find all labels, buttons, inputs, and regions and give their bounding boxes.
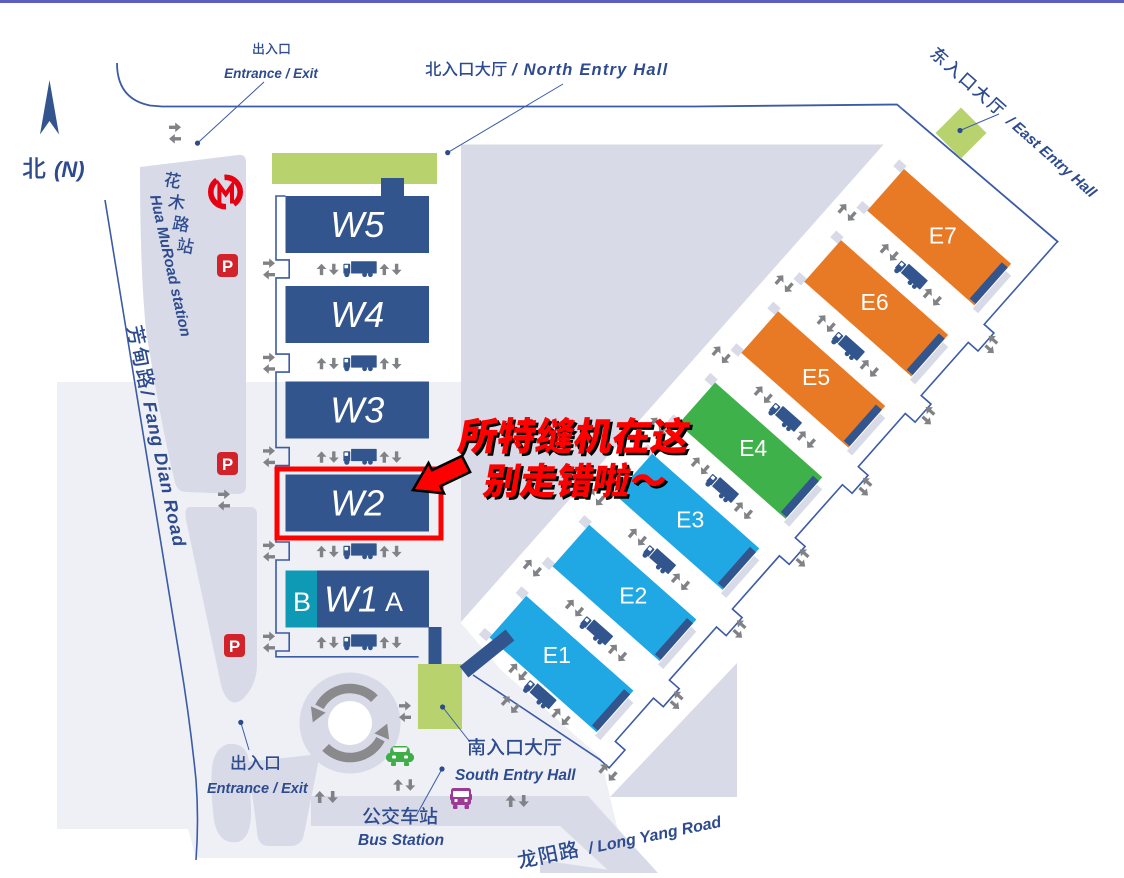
svg-text:P: P bbox=[222, 455, 233, 474]
svg-text:E6: E6 bbox=[861, 289, 889, 315]
svg-text:Bus Station: Bus Station bbox=[358, 832, 444, 849]
svg-text:Entrance / Exit: Entrance / Exit bbox=[224, 66, 318, 81]
svg-text:B: B bbox=[293, 587, 311, 617]
svg-text:South Entry Hall: South Entry Hall bbox=[455, 767, 576, 784]
svg-text:E2: E2 bbox=[619, 583, 647, 609]
svg-text:W2: W2 bbox=[330, 483, 384, 524]
svg-text:W4: W4 bbox=[330, 294, 384, 335]
svg-text:Entrance / Exit: Entrance / Exit bbox=[207, 781, 309, 797]
svg-text:E1: E1 bbox=[543, 642, 571, 668]
svg-text:P: P bbox=[229, 637, 240, 656]
svg-text:P: P bbox=[222, 257, 233, 276]
svg-text:/ North Entry Hall: / North Entry Hall bbox=[511, 61, 668, 79]
svg-text:W1: W1 bbox=[324, 579, 378, 620]
svg-text:W3: W3 bbox=[330, 390, 384, 431]
svg-text:E4: E4 bbox=[739, 435, 767, 461]
svg-text:A: A bbox=[385, 587, 403, 617]
svg-text:E5: E5 bbox=[802, 364, 830, 390]
svg-text:(N): (N) bbox=[54, 157, 85, 182]
svg-text:E7: E7 bbox=[929, 222, 957, 248]
svg-text:E3: E3 bbox=[676, 506, 704, 532]
svg-text:W5: W5 bbox=[330, 204, 385, 245]
